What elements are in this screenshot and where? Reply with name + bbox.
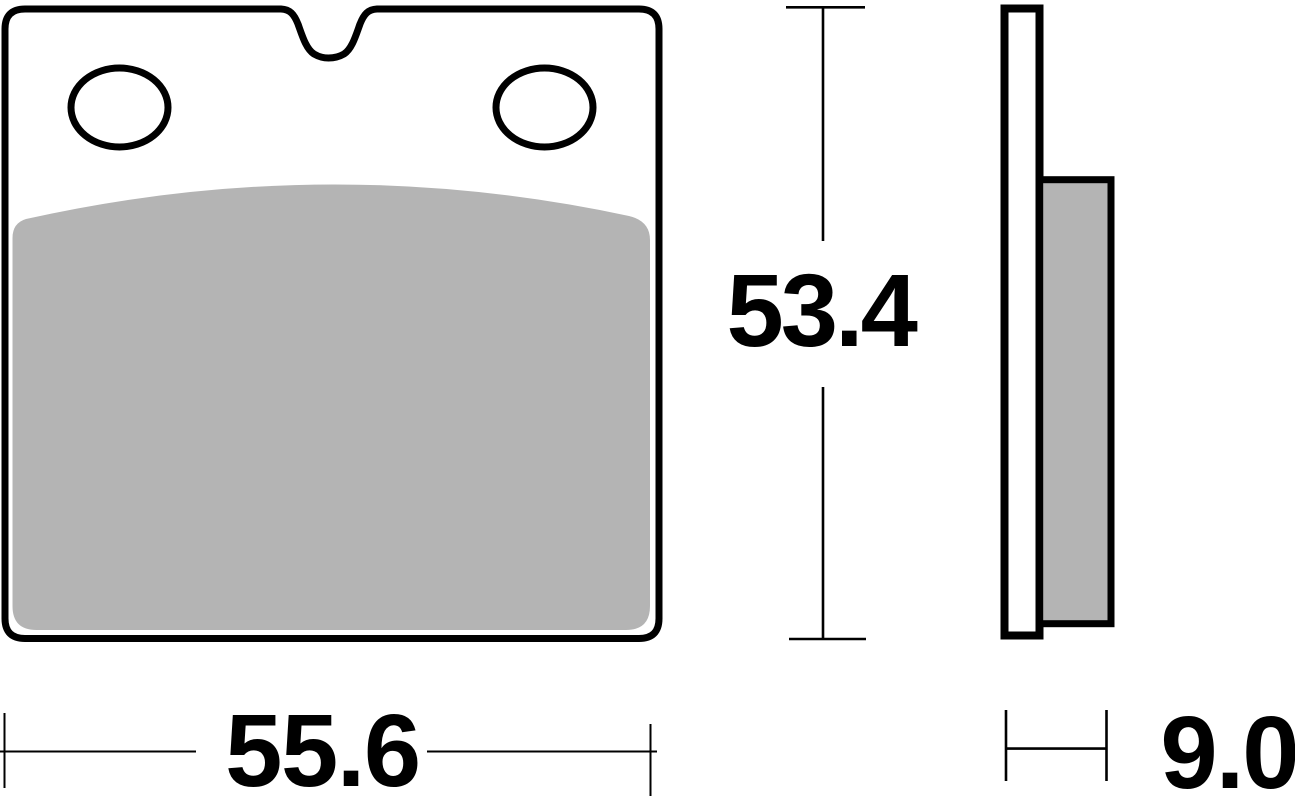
svg-text:9.0: 9.0 — [1160, 695, 1295, 796]
svg-text:55.6: 55.6 — [225, 693, 419, 796]
svg-text:53.4: 53.4 — [726, 253, 917, 368]
